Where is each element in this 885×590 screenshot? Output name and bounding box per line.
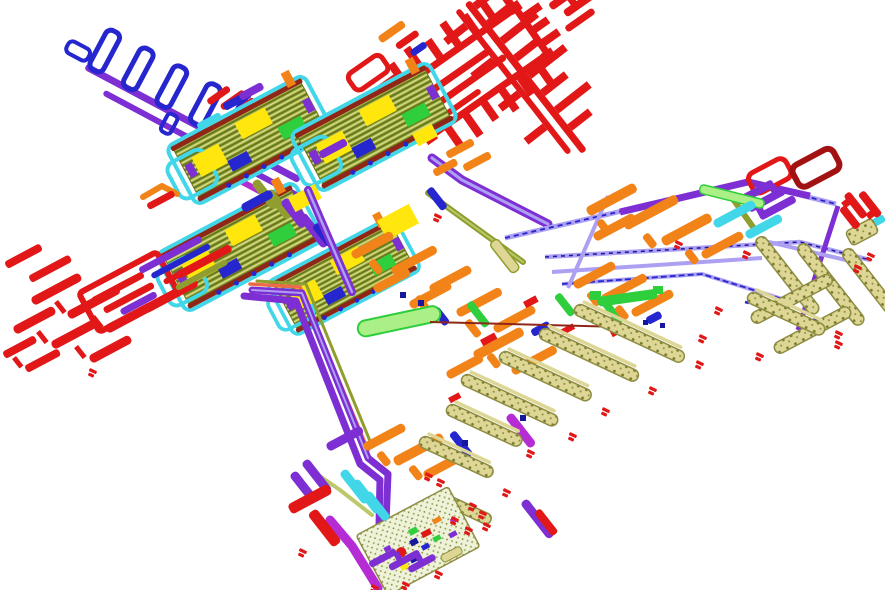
ic-layout-canvas — [0, 0, 885, 590]
ic-layout-figure — [0, 0, 885, 590]
